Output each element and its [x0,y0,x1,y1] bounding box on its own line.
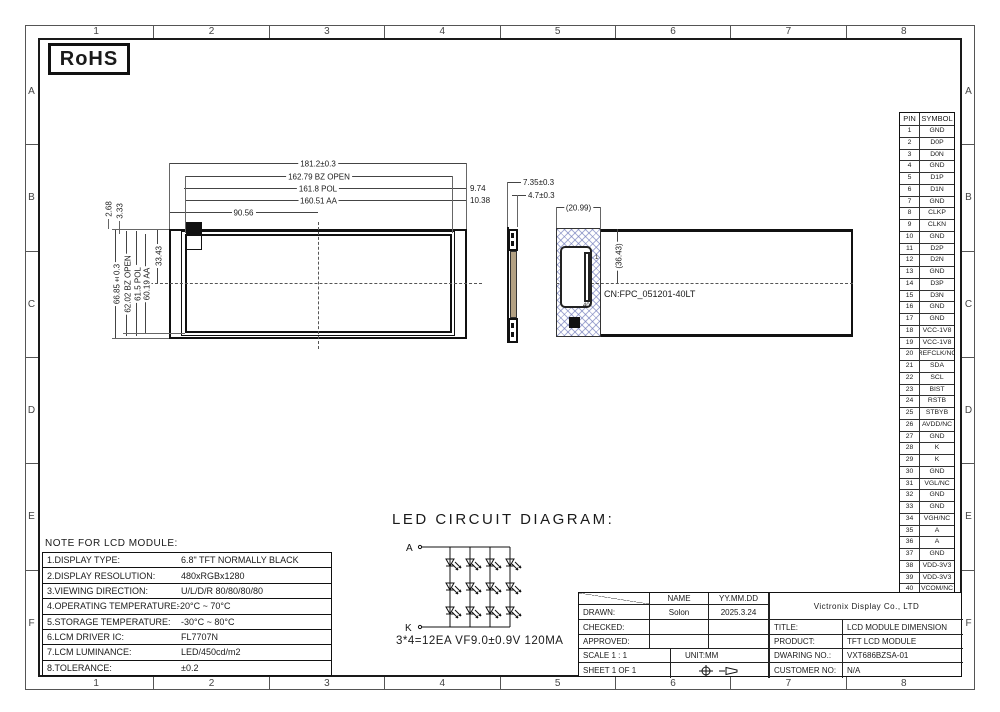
led-spec-annotation: 3*4=12EA VF9.0±0.9V 120MA [396,635,563,647]
grid-col-label: 6 [615,677,730,690]
ext-line [600,207,601,229]
pin-table-row: 31VGL/NC [900,478,954,490]
pin-table-row: 18VCC-1V8 [900,325,954,337]
tb-drawn-date: 2025.3.24 [709,605,769,620]
tb-company: Victronix Display Co., LTD [769,593,963,620]
fpc-connector-slot [584,252,590,302]
pin-number: 27 [900,432,920,443]
pin-table-row: 5D1P [900,172,954,184]
profile-detail-mark [511,332,514,337]
tb-unit: UNIT:MM [671,649,769,663]
grid-col-label: 3 [269,677,384,690]
note-value: LED/450cd/m2 [181,647,241,657]
tb-drawing-label: DWARING NO.: [769,649,843,663]
note-value: ±0.2 [181,663,198,673]
pin-number: 1 [900,126,920,137]
pin-table-row: 36A [900,536,954,548]
pin-number: 25 [900,408,920,419]
dim-edge-aa-line [452,200,467,201]
tb-product-value: TFT LCD MODULE [843,635,963,649]
pin-table-row: 15D3N [900,290,954,302]
grid-row-label: C [25,251,38,357]
led-circuit-svg: A K [400,535,560,637]
grid-col-label: 3 [269,25,384,38]
pin-table-row: 6D1N [900,184,954,196]
grid-col-label: 7 [730,25,845,38]
grid-ref-top: 12345678 [39,25,961,38]
ext-line [556,207,557,228]
tb-drawn-label: DRAWN: [579,605,650,620]
dim-pol-height: 61.5 POL [136,231,137,336]
pin-number: 33 [900,502,920,513]
pin-number: 34 [900,514,920,525]
pin-table-row: 9CLKN [900,219,954,231]
pin-table-row: 3D0N [900,149,954,161]
led-diagram-title: LED CIRCUIT DIAGRAM: [392,511,614,528]
pin-number: 18 [900,326,920,337]
grid-col-label: 1 [39,25,153,38]
pin-symbol: REFCLK/NC [920,349,954,360]
pin-symbol: K [920,455,954,466]
projection-symbol-icon [699,665,741,677]
grid-row-label: F [25,570,38,676]
pin-symbol: D3P [920,279,954,290]
driver-ic-mark [186,222,202,234]
ext-line [169,163,170,229]
tb-approved-label: APPROVED: [579,635,650,649]
pin-symbol: BIST [920,385,954,396]
tb-customer-label: CUSTOMER NO: [769,663,843,678]
dim-aa-height: 60.19 AA [145,234,146,333]
detail-centerline [556,283,853,284]
pin-number: 22 [900,373,920,384]
note-label: 6.LCM DRIVER IC: [47,632,124,642]
led-cathode-label: K [405,623,412,634]
tb-name-header: NAME [650,593,709,605]
grid-ref-right: ABCDEF [962,39,975,676]
pin-table-row: 23BIST [900,384,954,396]
pin-symbol: VGL/NC [920,479,954,490]
profile-detail-mark [511,241,514,246]
dim-pol-width: 161.8 POL [184,188,452,189]
pin-number: 17 [900,314,920,325]
note-row: 3.VIEWING DIRECTION:U/L/D/R 80/80/80/80 [43,583,331,598]
pin-table-row: 19VCC-1V8 [900,337,954,349]
dim-aa-width: 160.51 AA [185,200,452,201]
dim-center-height: 33.43 [157,229,158,283]
pin-symbol: GND [920,197,954,208]
pin-number: 37 [900,549,920,560]
pin-symbol: GND [920,126,954,137]
dim-fpc-height: (36.43) [617,229,618,283]
note-label: 5.STORAGE TEMPERATURE: [47,617,171,627]
pin-table-row: 34VGH/NC [900,513,954,525]
dim-edge-pol-line [452,188,467,189]
pin-table-row: 13GND [900,266,954,278]
pin-number: 36 [900,537,920,548]
pin-table-row: 28K [900,442,954,454]
pin-number: PIN [900,113,920,125]
pin-number: 26 [900,420,920,431]
note-value: 480xRGBx1280 [181,571,245,581]
pin-symbol: SDA [920,361,954,372]
lcd-notes-table: 1.DISPLAY TYPE:6.8" TFT NORMALLY BLACK2.… [42,552,332,676]
grid-col-label: 2 [153,677,268,690]
pin-symbol: AVDD/NC [920,420,954,431]
ext-line [507,182,508,227]
tb-checked-label: CHECKED: [579,620,650,635]
pin-number: 14 [900,279,920,290]
notes-title: NOTE FOR LCD MODULE: [45,538,178,549]
pin-table-header: PINSYMBOL [900,113,954,125]
grid-row-label: F [962,570,975,676]
dim-thickness-line [507,182,521,183]
pin-table-row: 35A [900,525,954,537]
tb-scale: SCALE 1 : 1 [579,649,671,663]
grid-col-label: 7 [730,677,845,690]
grid-row-label: E [25,463,38,569]
pin-number: 16 [900,302,920,313]
note-row: 6.LCM DRIVER IC:FL7707N [43,629,331,644]
grid-row-label: E [962,463,975,569]
pin-number: 39 [900,573,920,584]
pin-symbol: D1P [920,173,954,184]
pin-table-row: 8CLKP [900,207,954,219]
pin-symbol: D1N [920,185,954,196]
pin-symbol: GND [920,302,954,313]
grid-col-label: 6 [615,25,730,38]
note-value: -30°C ~ 80°C [181,617,234,627]
pin-table-row: 25STBYB [900,407,954,419]
grid-col-label: 1 [39,677,153,690]
pin-symbol: D2N [920,255,954,266]
note-label: 4.OPERATING TEMPERATURE: [47,601,179,611]
tb-approved-name [650,635,709,649]
fpc-pin40-label: 40 [583,303,590,309]
pin-number: 21 [900,361,920,372]
pin-table-row: 37GND [900,548,954,560]
ext-line [112,229,169,230]
grid-row-label: A [962,39,975,144]
grid-col-label: 8 [846,677,961,690]
ext-line [466,163,467,229]
ext-line [119,221,120,234]
ext-line [112,338,169,339]
led-circuit-drawing: A K [400,535,560,637]
pin-table-row: 1GND [900,125,954,137]
pin-table-row: 12D2N [900,254,954,266]
pin-symbol: D2P [920,244,954,255]
grid-col-label: 5 [500,677,615,690]
tb-approved-date [709,635,769,649]
vertical-centerline [318,222,319,349]
pin-number: 23 [900,385,920,396]
note-label: 7.LCM LUMINANCE: [47,647,132,657]
pin-number: 6 [900,185,920,196]
pin-symbol: CLKN [920,220,954,231]
pin-assignment-table: PINSYMBOL1GND2D0P3D0N4GND5D1P6D1N7GND8CL… [899,112,955,596]
pin-symbol: A [920,526,954,537]
pin-symbol: GND [920,490,954,501]
pin-table-row: 33GND [900,501,954,513]
pin-symbol: GND [920,432,954,443]
pin-table-row: 20REFCLK/NC [900,348,954,360]
dim-thickness: 7.35±0.3 [523,178,554,187]
pin-symbol: D0N [920,150,954,161]
pin-table-row: 11D2P [900,243,954,255]
pin-symbol: GND [920,267,954,278]
pin-number: 7 [900,197,920,208]
ext-line [185,176,186,233]
note-value: FL7707N [181,632,218,642]
dim-partial-line [512,195,526,196]
pin-table-row: 29K [900,454,954,466]
note-row: 1.DISPLAY TYPE:6.8" TFT NORMALLY BLACK [43,553,331,567]
pin-symbol: VDD-3V3 [920,561,954,572]
grid-row-label: B [25,144,38,250]
profile-bottom-connector [508,318,518,343]
ext-line [108,219,109,229]
connector-part-number: CN:FPC_051201-40LT [604,289,695,299]
tb-drawing-value: VXT686BZSA-01 [843,649,963,663]
title-block: NAME YY.MM.DD DRAWN: Solon 2025.3.24 CHE… [578,592,962,677]
ic-footprint [186,234,202,250]
note-row: 8.TOLERANCE:±0.2 [43,660,331,675]
pin-number: 28 [900,443,920,454]
grid-row-label: D [962,357,975,463]
dim-overall-height: 66.85±0.3 [115,229,116,339]
pin-number: 15 [900,291,920,302]
dim-overall-width: 181.2±0.3 [169,163,467,164]
profile-detail-mark [511,323,514,328]
note-value: U/L/D/R 80/80/80/80 [181,586,263,596]
tb-date-header: YY.MM.DD [709,593,769,605]
note-value: -20°C ~ 70°C [177,601,230,611]
pin-symbol: GND [920,467,954,478]
grid-ref-left: ABCDEF [25,39,38,676]
pin-number: 8 [900,208,920,219]
drawing-sheet: 12345678 12345678 ABCDEF ABCDEF RoHS 181… [0,0,1000,712]
note-row: 7.LCM LUMINANCE:LED/450cd/m2 [43,644,331,659]
grid-ref-bottom: 12345678 [39,677,961,690]
note-row: 4.OPERATING TEMPERATURE:-20°C ~ 70°C [43,598,331,613]
tb-checked-name [650,620,709,635]
dim-bz-open-width: 162.79 BZ OPEN [185,176,453,177]
pin-table-row: 30GND [900,466,954,478]
tb-product-label: PRODUCT: [769,635,843,649]
pin-number: 10 [900,232,920,243]
dim-bz-open-height: 62.02 BZ OPEN [126,231,127,336]
fpc-stiffener-mark [569,317,580,328]
pin-table-row: 21SDA [900,360,954,372]
pin-symbol: GND [920,232,954,243]
dim-fpc-width-line: (20.99) [556,207,601,208]
note-label: 8.TOLERANCE: [47,663,112,673]
pin-symbol: SYMBOL [920,113,954,125]
tb-customer-value: N/A [843,663,963,678]
pin-table-row: 2D0P [900,137,954,149]
pin-symbol: STBYB [920,408,954,419]
pin-number: 32 [900,490,920,501]
pin-symbol: K [920,443,954,454]
tb-title-label: TITLE: [769,620,843,635]
rohs-label: RoHS [60,48,118,71]
tb-projection-cell [671,663,769,678]
tb-checked-date [709,620,769,635]
pin-number: 3 [900,150,920,161]
pin-number: 2 [900,138,920,149]
pin-number: 29 [900,455,920,466]
grid-col-label: 4 [384,677,499,690]
note-label: 3.VIEWING DIRECTION: [47,586,148,596]
dim-center-width: 90.56 [169,212,318,213]
pin-symbol: D3N [920,291,954,302]
pin-number: 5 [900,173,920,184]
pin-table-row: 14D3P [900,278,954,290]
pin-table-row: 16GND [900,301,954,313]
tb-title-value: LCD MODULE DIMENSION [843,620,963,635]
pin-number: 13 [900,267,920,278]
note-label: 1.DISPLAY TYPE: [47,555,120,565]
pin-symbol: VDD-3V3 [920,573,954,584]
pin-number: 11 [900,244,920,255]
pin-table-row: 4GND [900,160,954,172]
grid-row-label: C [962,251,975,357]
pin-symbol: VCC-1V8 [920,338,954,349]
pin-symbol: VCC-1V8 [920,326,954,337]
pin-table-row: 32GND [900,489,954,501]
pin-table-row: 10GND [900,231,954,243]
fpc-pin1-label: 1 [595,255,598,261]
tb-sheet: SHEET 1 OF 1 [579,663,671,678]
pin-number: 35 [900,526,920,537]
grid-col-label: 2 [153,25,268,38]
dim-edge-pol: 9.74 [470,184,486,193]
pin-symbol: D0P [920,138,954,149]
tb-drawn-name: Solon [650,605,709,620]
pin-table-row: 38VDD-3V3 [900,560,954,572]
pin-number: 4 [900,161,920,172]
grid-col-label: 8 [846,25,961,38]
pin-table-row: 7GND [900,196,954,208]
pin-table-row: 17GND [900,313,954,325]
horizontal-centerline [150,283,482,284]
note-row: 2.DISPLAY RESOLUTION:480xRGBx1280 [43,567,331,582]
tb-diagonal-cell [579,593,650,605]
ext-line [517,195,518,227]
pin-table-row: 27GND [900,431,954,443]
pin-number: 31 [900,479,920,490]
dim-edge-aa: 10.38 [470,196,490,205]
pin-symbol: A [920,537,954,548]
pin-symbol: GND [920,502,954,513]
grid-row-label: D [25,357,38,463]
pin-symbol: SCL [920,373,954,384]
pin-table-row: 26AVDD/NC [900,419,954,431]
pin-symbol: GND [920,549,954,560]
profile-backlight [510,251,517,318]
led-anode-label: A [406,543,413,554]
pin-number: 24 [900,396,920,407]
dim-partial: 4.7±0.3 [528,191,555,200]
ext-line [123,333,185,334]
pin-table-row: 39VDD-3V3 [900,572,954,584]
grid-col-label: 5 [500,25,615,38]
pin-number: 30 [900,467,920,478]
rohs-badge: RoHS [48,43,130,75]
grid-row-label: B [962,144,975,250]
pin-table-row: 24RSTB [900,395,954,407]
pin-number: 19 [900,338,920,349]
pin-number: 9 [900,220,920,231]
ext-line [452,176,453,233]
pin-symbol: VGH/NC [920,514,954,525]
note-row: 5.STORAGE TEMPERATURE:-30°C ~ 80°C [43,614,331,629]
pin-symbol: GND [920,161,954,172]
grid-col-label: 4 [384,25,499,38]
pin-number: 38 [900,561,920,572]
profile-detail-mark [511,233,514,238]
note-label: 2.DISPLAY RESOLUTION: [47,571,155,581]
pin-symbol: RSTB [920,396,954,407]
pin-number: 20 [900,349,920,360]
grid-row-label: A [25,39,38,144]
pin-symbol: GND [920,314,954,325]
pin-number: 12 [900,255,920,266]
note-value: 6.8" TFT NORMALLY BLACK [181,555,299,565]
pin-symbol: CLKP [920,208,954,219]
pin-table-row: 22SCL [900,372,954,384]
